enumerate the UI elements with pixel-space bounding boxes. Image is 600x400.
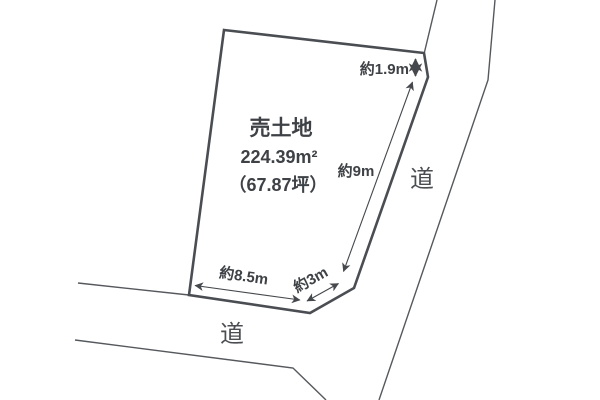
- parcel-area-sqm: 224.39m²: [240, 147, 317, 167]
- dimension-label-9m: 約9m: [338, 162, 375, 180]
- road-label-south: 道: [220, 321, 244, 348]
- parcel-title: 売土地: [250, 116, 313, 140]
- dimension-label-1-9m: 約1.9m: [360, 60, 409, 78]
- diagram-canvas: 約1.9m 約9m 約8.5m 約3m 道 道 売土地 224.39m² （67…: [0, 0, 600, 400]
- road-edge-south-inner: [78, 283, 189, 295]
- parcel-area-tsubo: （67.87坪）: [228, 175, 327, 195]
- land-plot-diagram: 約1.9m 約9m 約8.5m 約3m 道 道 売土地 224.39m² （67…: [0, 0, 600, 400]
- road-edge-south-outer: [75, 340, 326, 400]
- road-edge-east-inner-extension: [425, 0, 438, 52]
- road-label-east: 道: [410, 166, 434, 193]
